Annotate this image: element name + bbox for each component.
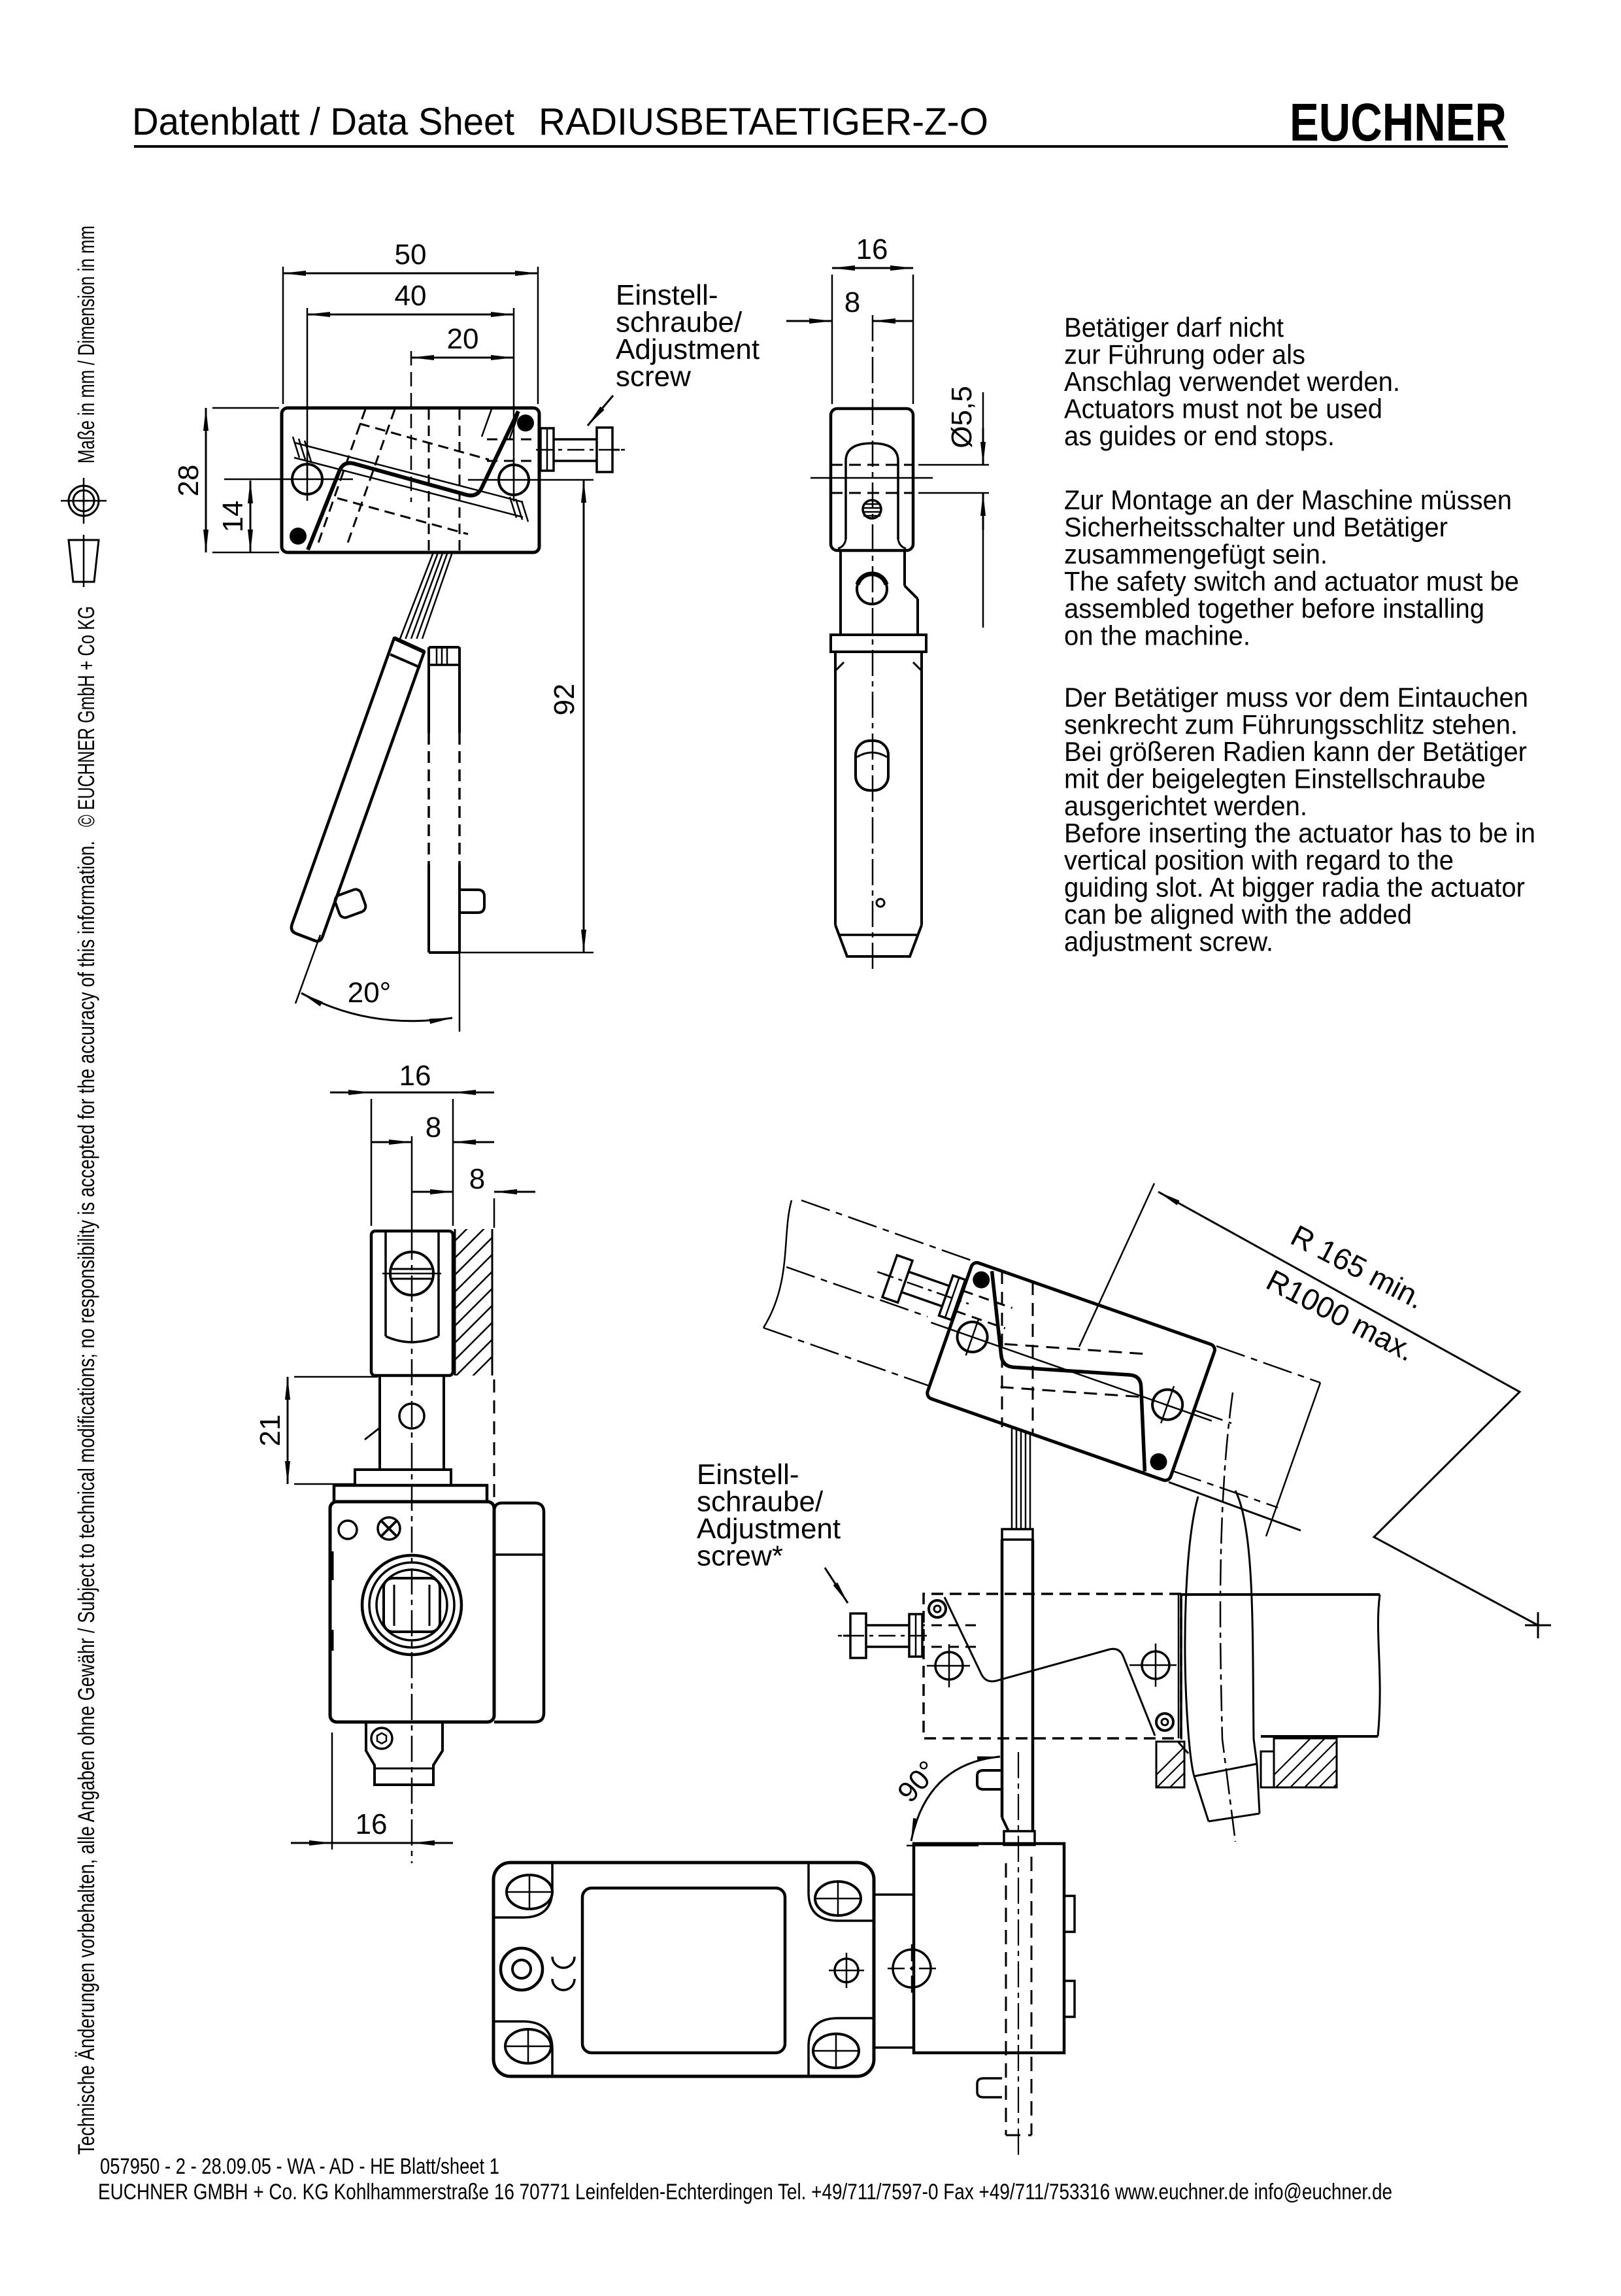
svg-text:ausgerichtet werden.: ausgerichtet werden. [1064,790,1307,821]
svg-text:Der Betätiger muss vor dem Ein: Der Betätiger muss vor dem Eintauchen [1064,682,1528,713]
svg-text:vertical position with regard: vertical position with regard to the [1064,845,1454,875]
svg-text:© EUCHNER GmbH + Co KG: © EUCHNER GmbH + Co KG [74,606,99,827]
svg-text:EUCHNER: EUCHNER [1290,93,1507,152]
svg-text:on the machine.: on the machine. [1064,620,1250,651]
svg-text:screw: screw [616,361,691,393]
svg-text:20: 20 [447,323,479,355]
svg-text:Before inserting the actuator: Before inserting the actuator has to be … [1064,818,1535,849]
svg-text:zusammengefügt sein.: zusammengefügt sein. [1064,539,1328,569]
svg-text:Betätiger darf nicht: Betätiger darf nicht [1064,312,1284,343]
svg-text:20°: 20° [348,977,392,1009]
svg-text:can be aligned with the added: can be aligned with the added [1064,899,1412,930]
svg-text:Zur Montage an der Maschine mü: Zur Montage an der Maschine müssen [1064,484,1512,515]
svg-text:28: 28 [173,465,205,497]
svg-text:Datenblatt / Data Sheet: Datenblatt / Data Sheet [132,101,514,143]
svg-text:Technische Änderungen vorbehal: Technische Änderungen vorbehalten, alle … [74,841,99,2155]
svg-text:16: 16 [356,1808,388,1840]
svg-text:Bei größeren Radien kann der B: Bei größeren Radien kann der Betätiger [1064,736,1527,767]
svg-text:senkrecht zum Führungsschlitz: senkrecht zum Führungsschlitz stehen. [1064,709,1518,740]
svg-text:Actuators must not be used: Actuators must not be used [1064,394,1382,424]
svg-text:8: 8 [844,286,860,318]
svg-text:EUCHNER GMBH + Co. KG Kohlha: EUCHNER GMBH + Co. KG Kohlhammerstraße 1… [98,2180,1392,2204]
svg-text:as guides or end stops.: as guides or end stops. [1064,420,1335,451]
svg-text:Sicherheitsschalter und Betäti: Sicherheitsschalter und Betätiger [1064,512,1448,543]
svg-text:assembled together before inst: assembled together before installing [1064,593,1484,624]
svg-text:14: 14 [217,501,249,533]
svg-text:50: 50 [395,239,427,271]
svg-text:screw*: screw* [697,1540,783,1572]
svg-text:mit der beigelegten Einstellsc: mit der beigelegten Einstellschraube [1064,764,1486,794]
svg-text:Anschlag verwendet werden.: Anschlag verwendet werden. [1064,366,1400,397]
svg-text:8: 8 [469,1163,485,1195]
svg-text:057950 - 2 - 28.09.05 - WA -: 057950 - 2 - 28.09.05 - WA - AD - HE Bla… [100,2154,499,2179]
svg-text:The safety switch and actuator: The safety switch and actuator must be [1064,566,1519,597]
svg-text:Ø5,5: Ø5,5 [946,386,978,448]
svg-text:RADIUSBETAETIGER-Z-O: RADIUSBETAETIGER-Z-O [539,101,988,143]
svg-text:40: 40 [395,280,427,312]
svg-text:16: 16 [399,1060,431,1092]
svg-text:16: 16 [856,233,888,265]
svg-text:92: 92 [548,684,580,716]
svg-text:guiding slot. At bigger radia: guiding slot. At bigger radia the actuat… [1064,872,1525,903]
svg-text:zur Führung oder als: zur Führung oder als [1064,339,1305,370]
svg-text:Maße in mm / Dimension in mm: Maße in mm / Dimension in mm [74,226,99,464]
svg-text:8: 8 [426,1111,441,1143]
svg-text:21: 21 [254,1415,286,1447]
svg-text:adjustment screw.: adjustment screw. [1064,926,1273,957]
